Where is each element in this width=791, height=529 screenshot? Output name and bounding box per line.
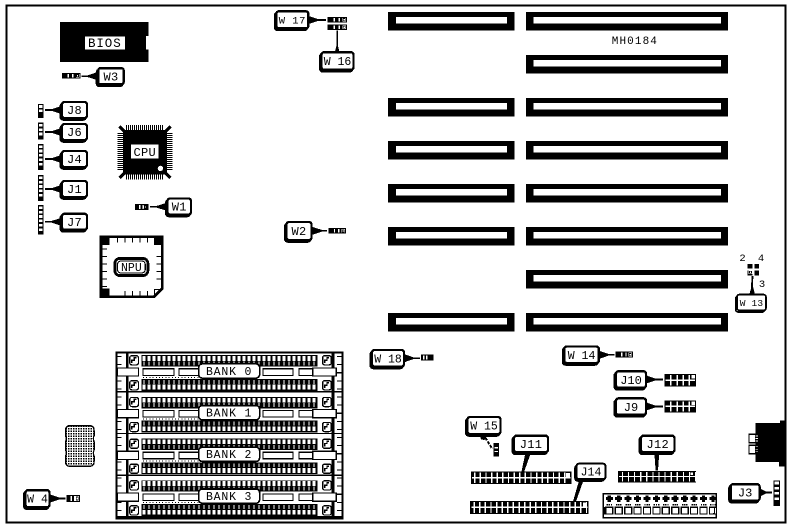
svg-text:W 16: W 16 (324, 56, 352, 69)
svg-text:J8: J8 (67, 104, 82, 118)
svg-text:BANK 2: BANK 2 (206, 449, 252, 462)
svg-text:W3: W3 (103, 70, 118, 84)
svg-text:J1: J1 (67, 183, 82, 197)
svg-text:3: 3 (759, 279, 765, 291)
svg-text:J10: J10 (620, 374, 642, 388)
svg-text:W 15: W 15 (470, 421, 498, 434)
svg-text:J3: J3 (738, 487, 752, 501)
svg-text:4: 4 (758, 253, 764, 265)
svg-text:CPU: CPU (134, 146, 157, 160)
svg-text:J6: J6 (67, 126, 82, 140)
svg-text:W 4: W 4 (27, 494, 48, 507)
svg-text:J12: J12 (646, 438, 669, 452)
svg-text:BANK 0: BANK 0 (206, 366, 252, 379)
svg-text:W1: W1 (172, 201, 187, 215)
svg-text:W 14: W 14 (568, 350, 596, 363)
svg-text:W 18: W 18 (374, 353, 402, 366)
svg-text:BIOS: BIOS (88, 37, 122, 51)
svg-text:NPU: NPU (121, 262, 142, 275)
svg-text:J9: J9 (624, 401, 638, 415)
svg-text:W 17: W 17 (279, 15, 306, 27)
svg-text:BANK 1: BANK 1 (206, 408, 252, 421)
svg-text:J7: J7 (67, 216, 82, 230)
svg-text:J14: J14 (581, 466, 602, 479)
svg-text:2: 2 (739, 253, 745, 265)
svg-text:W 13: W 13 (740, 298, 764, 309)
svg-text:J11: J11 (520, 438, 543, 452)
svg-text:W2: W2 (291, 225, 306, 239)
svg-text:MH0184: MH0184 (612, 36, 658, 48)
svg-text:J4: J4 (67, 153, 82, 167)
svg-text:BANK 3: BANK 3 (206, 491, 252, 504)
